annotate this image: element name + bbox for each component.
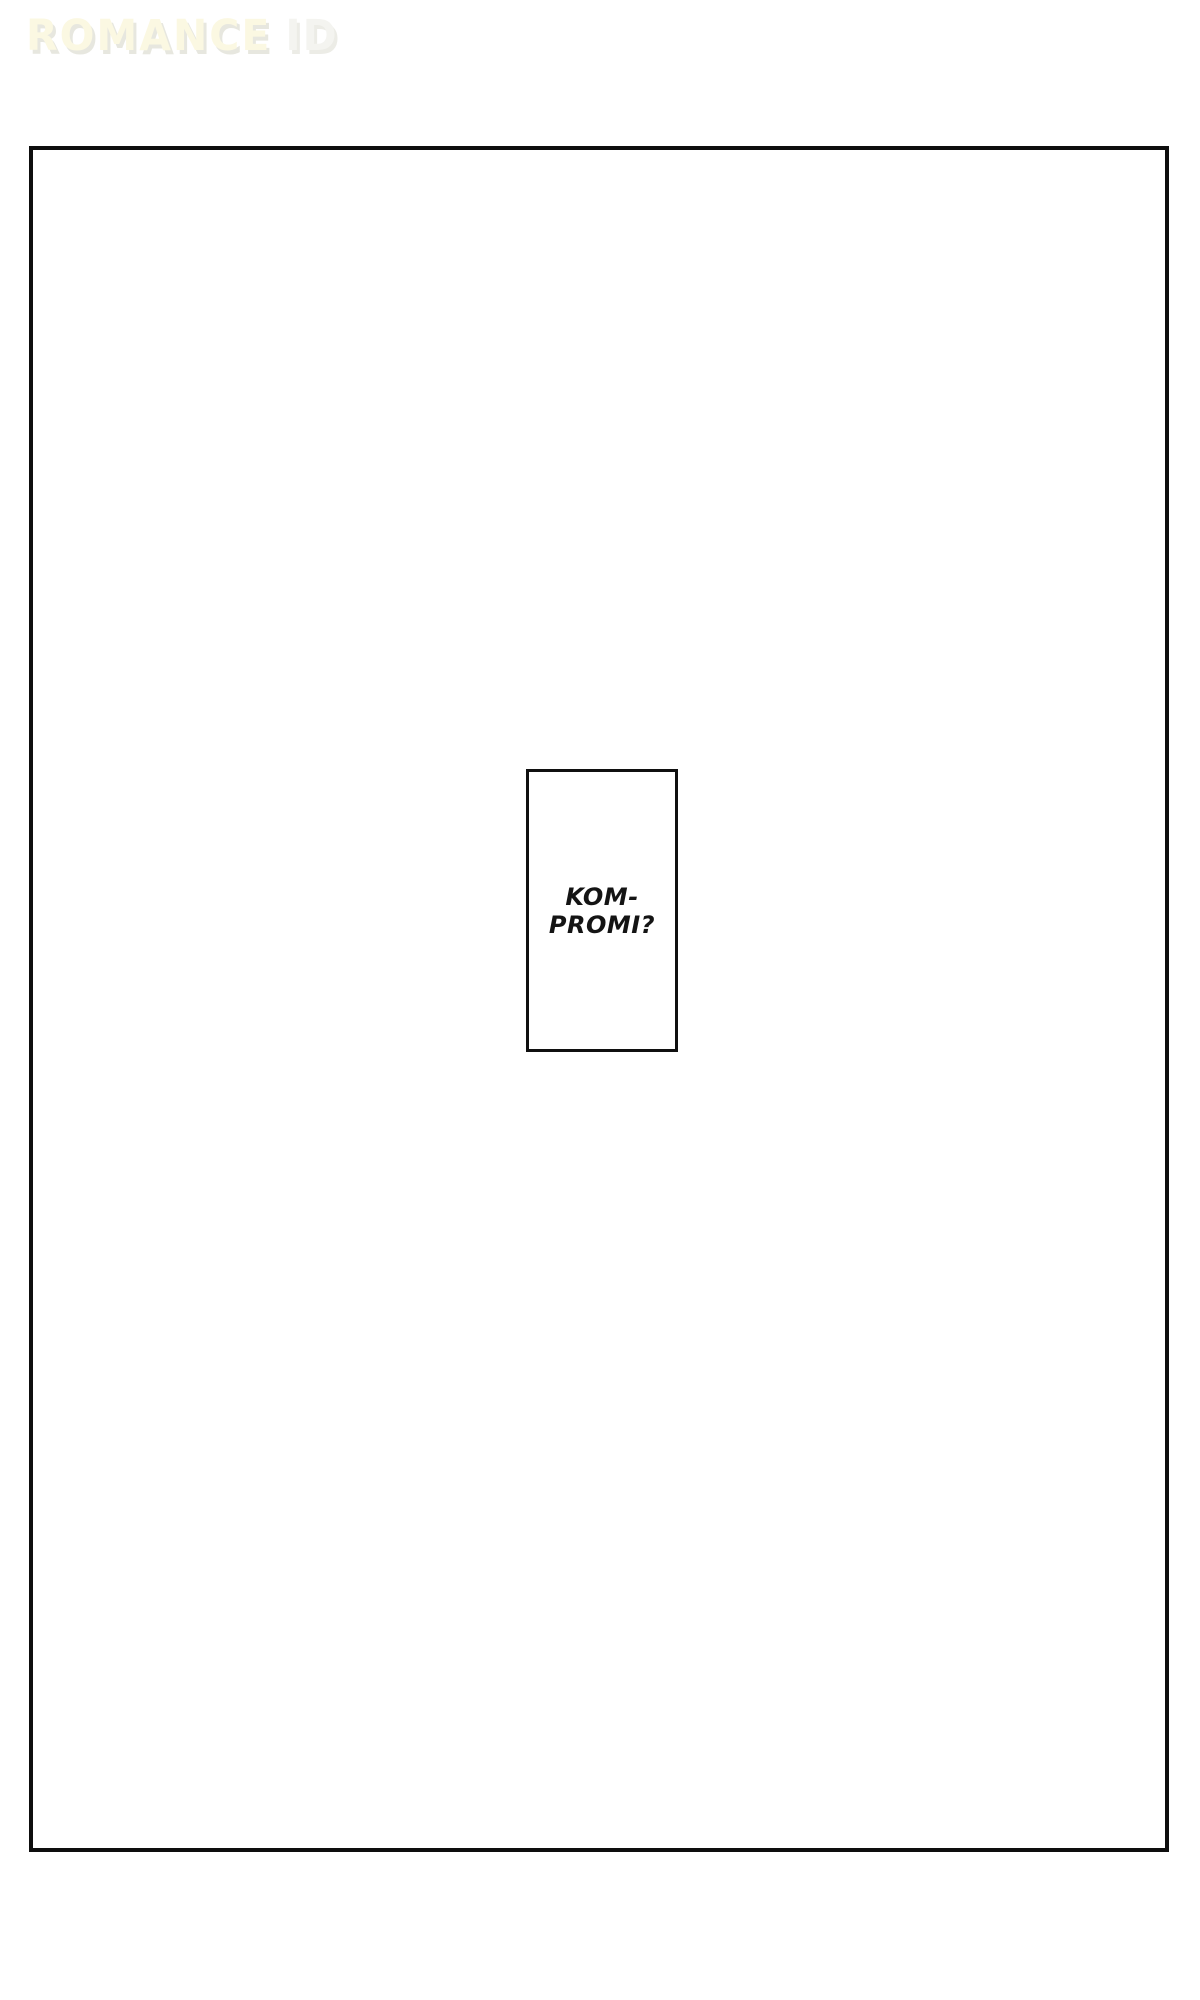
speech-caption-box: KOM- PROMI? [526,769,678,1052]
speech-text: KOM- PROMI? [549,883,655,939]
watermark-text-secondary: ID [285,10,338,60]
comic-page: ROMANCEID KOM- PROMI? [0,0,1200,2000]
publisher-watermark: ROMANCEID [26,10,339,60]
watermark-text-primary: ROMANCE [26,10,271,60]
speech-line-1: KOM- [549,883,655,911]
speech-line-2: PROMI? [549,911,655,939]
